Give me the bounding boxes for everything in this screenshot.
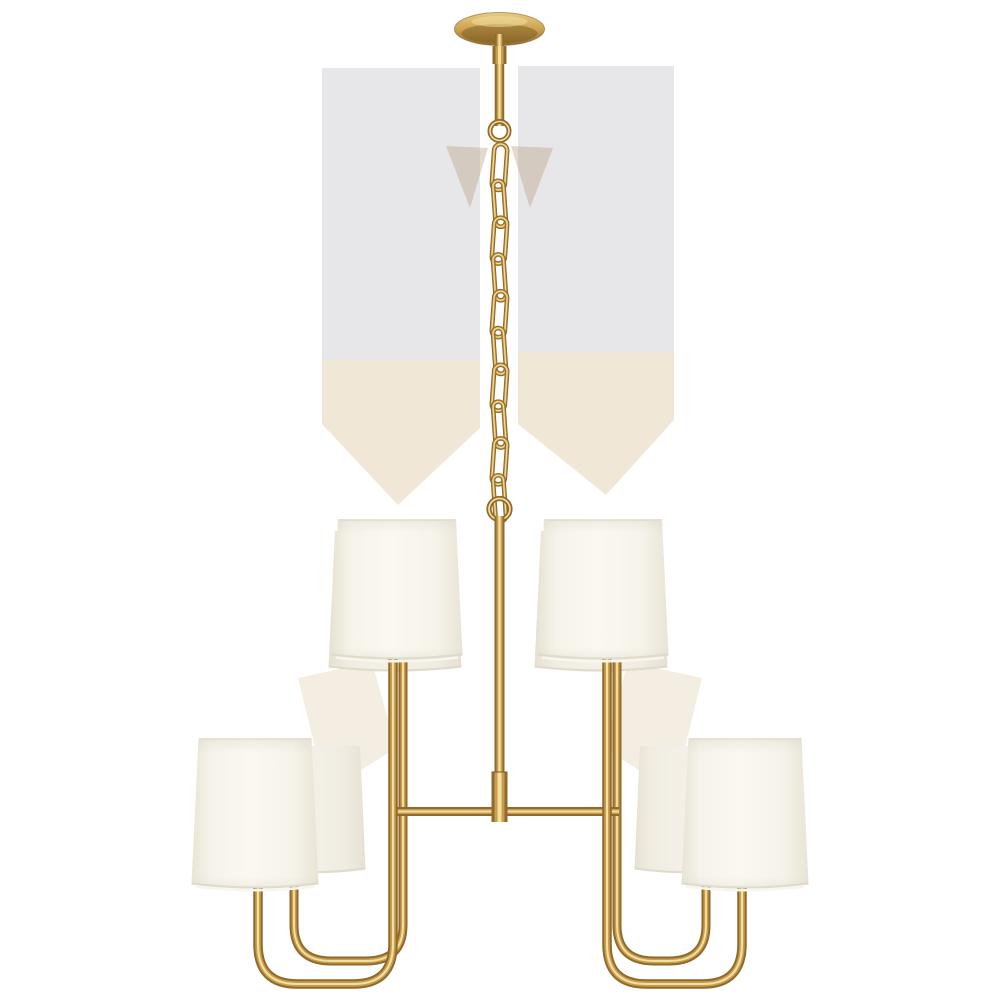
lamp-shade-lower-right-front bbox=[682, 738, 809, 890]
lamp-shade-lower-left-front bbox=[192, 738, 319, 890]
lamp-shade-upper-right-front bbox=[538, 519, 669, 661]
chain bbox=[491, 144, 507, 522]
product-image-chandelier: Eight-light two-tier chandelier in hand-… bbox=[0, 0, 1000, 1000]
chandelier-illustration: Eight-light two-tier chandelier in hand-… bbox=[0, 0, 1000, 1000]
lamp-shade-upper-left-front bbox=[332, 519, 463, 661]
column-collar bbox=[492, 772, 508, 822]
